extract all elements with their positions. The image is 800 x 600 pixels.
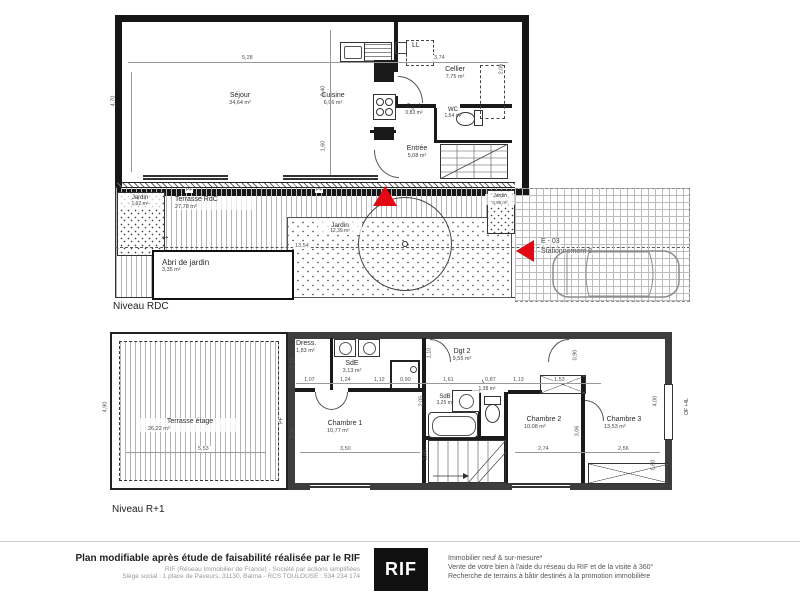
room-jardin-left: Jardin 1,92 m² [118,195,162,208]
dimension-label: 4,70 [108,98,119,104]
room-area: 1,54 m² [438,114,468,120]
footer-divider [0,541,800,542]
room-name: Terrasse étage [140,418,240,426]
burner [376,108,384,116]
window [283,175,378,182]
shower [390,360,420,390]
dimension-label: 1,13 [512,377,525,383]
dimension-label: 2,56 [616,446,631,452]
washbasin [334,339,356,357]
dimension-line [330,30,331,175]
room-name: Cellier [430,66,480,74]
room-sejour: Séjour 34,64 m² [210,92,270,106]
dimension-label: 2,06 [496,66,507,72]
entrance-arrow-icon [373,186,397,206]
room-area: 10,08 m² [512,424,576,430]
terrasse-etage-deck [119,341,279,481]
room-terrasse-rdc: Terrasse RdC 27,78 m² [175,196,255,210]
room-name: Chambre 2 [512,416,576,424]
dimension-label: 4,00 [650,398,661,404]
footer-left-block: Plan modifiable après étude de faisabili… [60,553,360,580]
dimension-label: 0,87 [484,377,497,383]
shower-drain [410,366,417,373]
window-of4l [664,384,673,440]
footer-right-block: Immobilier neuf & sur-mesure* Vente de v… [448,555,778,580]
double-arrow: ↔ [160,231,170,242]
footer-right-line1: Immobilier neuf & sur-mesure* [448,555,778,562]
room-area: 7,75 m² [430,74,480,80]
room-dgt2: Dgt 2 9,55 m² [440,348,484,362]
dimension-label: 2,74 [536,446,551,452]
room-name: Entrée [395,145,439,153]
footer-right-line2: Vente de votre bien à l'aide du réseau d… [448,564,778,571]
parking-arrow-icon [516,240,534,262]
room-area: 3,13 m² [332,368,372,374]
footer-right-line3: Recherche de terrains à bâtir destinés à… [448,573,778,580]
dimension-line [126,452,266,453]
pf-marker: PF [278,418,286,423]
room-area: 26,22 m² [140,426,240,432]
room-jardin-main: Jardin 12,39 m² [318,222,362,235]
dimension-label: 1,12 [373,377,386,383]
room-area: 3,35 m² [162,267,272,273]
burner [385,108,393,116]
room-area: 13,53 m² [592,424,656,430]
room-sdb: SdB 3,25 m² [428,394,462,407]
wall-segment [295,388,315,392]
dimension-label: 2,05 [416,398,427,404]
room-cellier: Cellier 7,75 m² [430,66,480,80]
of4l-marker: OF +4L [678,404,697,409]
staircase [440,144,508,179]
room-name: SdE [332,360,372,368]
room-area: 10,77 m² [315,428,375,434]
rif-logo-text: RIF [385,559,417,580]
kitchen-sink [340,42,366,62]
room-entree: Entrée 5,08 m² [395,145,439,159]
room-cuisine: Cuisine 6,96 m² [308,92,358,106]
dimension-label: 1,61 [442,377,455,383]
toilet-tank [474,110,483,126]
room-area: 9,55 m² [440,356,484,362]
basin-bowl [363,342,376,355]
dimension-label: 0,90 [570,352,581,358]
room-area: 1,38 m² [472,387,502,393]
room-jardin-right: Jardin 0,95 m² [485,194,515,205]
window [143,175,228,182]
room-name: Séjour [210,92,270,100]
dimension-label: 3,50 [338,446,353,452]
window [310,483,370,490]
footer-sub-line1: RIF (Réseau Immobilier de France) - Soci… [60,566,360,573]
room-name: Abri de jardin [162,258,272,267]
dishwasher [374,127,394,140]
dimension-label: 13,54 [293,243,311,249]
dimension-line [128,62,508,63]
room-area: 12,39 m² [318,229,362,235]
oven [374,60,394,82]
room-name: Cuisine [308,92,358,100]
cooktop [373,94,396,120]
dimension-label: 5,28 [240,55,255,61]
washbasin [358,339,380,357]
dimension-label: 4,90 [100,404,111,410]
room-area: 0,95 m² [485,200,515,205]
dimension-label: 1,07 [303,377,316,383]
car-icon [545,243,685,305]
room-area: 5,08 m² [395,153,439,159]
room-dgt1: Dgt 1 0,83 m² [398,104,430,117]
bathtub-inner [432,416,476,436]
level-label-rdc: Niveau RDC [113,301,169,312]
dimension-label: 3,08 [288,430,299,436]
room-area: 34,64 m² [210,100,270,106]
burner [376,98,384,106]
staircase [428,440,506,483]
room-area: 3,25 m² [428,401,462,407]
dimension-label: 0,90 [399,377,412,383]
room-terrasse-etage: Terrasse étage 26,22 m² [140,418,240,432]
room-area: 27,78 m² [175,204,255,210]
room-area: 1,92 m² [118,202,162,208]
room-chambre3: Chambre 3 13,53 m² [592,416,656,430]
washer-label: LL [412,42,420,49]
dimension-label: 1,53 [553,377,566,383]
sink-drainer [364,42,392,62]
basin-bowl [339,342,352,355]
sink-basin [344,46,362,59]
floor-plan-page: LL Séjour 34,64 m² Cuisine 6,96 m² Celli… [0,0,800,600]
wall-segment [508,390,542,394]
footer-bold-line: Plan modifiable après étude de faisabili… [60,553,360,564]
room-chambre1: Chambre 1 10,77 m² [315,420,375,434]
room-wc-rdc: WC 1,54 m² [438,107,468,120]
footer-sub-line2: Siège social : 1 place de Paveurs, 31130… [60,573,360,580]
pf-marker: PF [315,188,323,193]
room-name: Dgt 2 [440,348,484,356]
dimension-line [131,72,132,172]
pf-marker: PF [185,188,193,193]
level-label-r1: Niveau R+1 [112,504,165,515]
room-name: Chambre 1 [315,420,375,428]
dimension-label: 1,72 [288,360,299,366]
dimension-label: 1,60 [420,452,431,458]
burner [385,98,393,106]
dimension-line [296,383,601,384]
window [512,483,570,490]
room-area: 1,83 m² [296,348,332,354]
dimension-label: 1,60 [318,143,329,149]
wall-segment [434,108,437,143]
room-sde: SdE 3,13 m² [332,360,372,374]
room-area: 6,96 m² [308,100,358,106]
toilet-icon [485,404,500,423]
dimension-label: 3,74 [432,55,447,61]
room-dress: Dress. 1,83 m² [296,340,332,354]
dimension-label: 3,06 [572,428,583,434]
room-area: 0,83 m² [398,111,430,117]
room-name: Dress. [296,340,332,348]
dimension-line [515,452,660,453]
room-abri: Abri de jardin 3,35 m² [162,258,272,274]
rif-logo: RIF [374,548,428,591]
dimension-line [300,452,420,453]
dimension-label: 1,24 [339,377,352,383]
dimension-label: 1,10 [424,350,435,356]
dimension-label: 3,40 [318,88,329,94]
room-name: Terrasse RdC [175,196,255,204]
room-name: Chambre 3 [592,416,656,424]
wall-segment [434,140,512,143]
bathtub [428,412,478,438]
dimension-label: 0,60 [648,462,659,468]
room-chambre2: Chambre 2 10,08 m² [512,416,576,430]
